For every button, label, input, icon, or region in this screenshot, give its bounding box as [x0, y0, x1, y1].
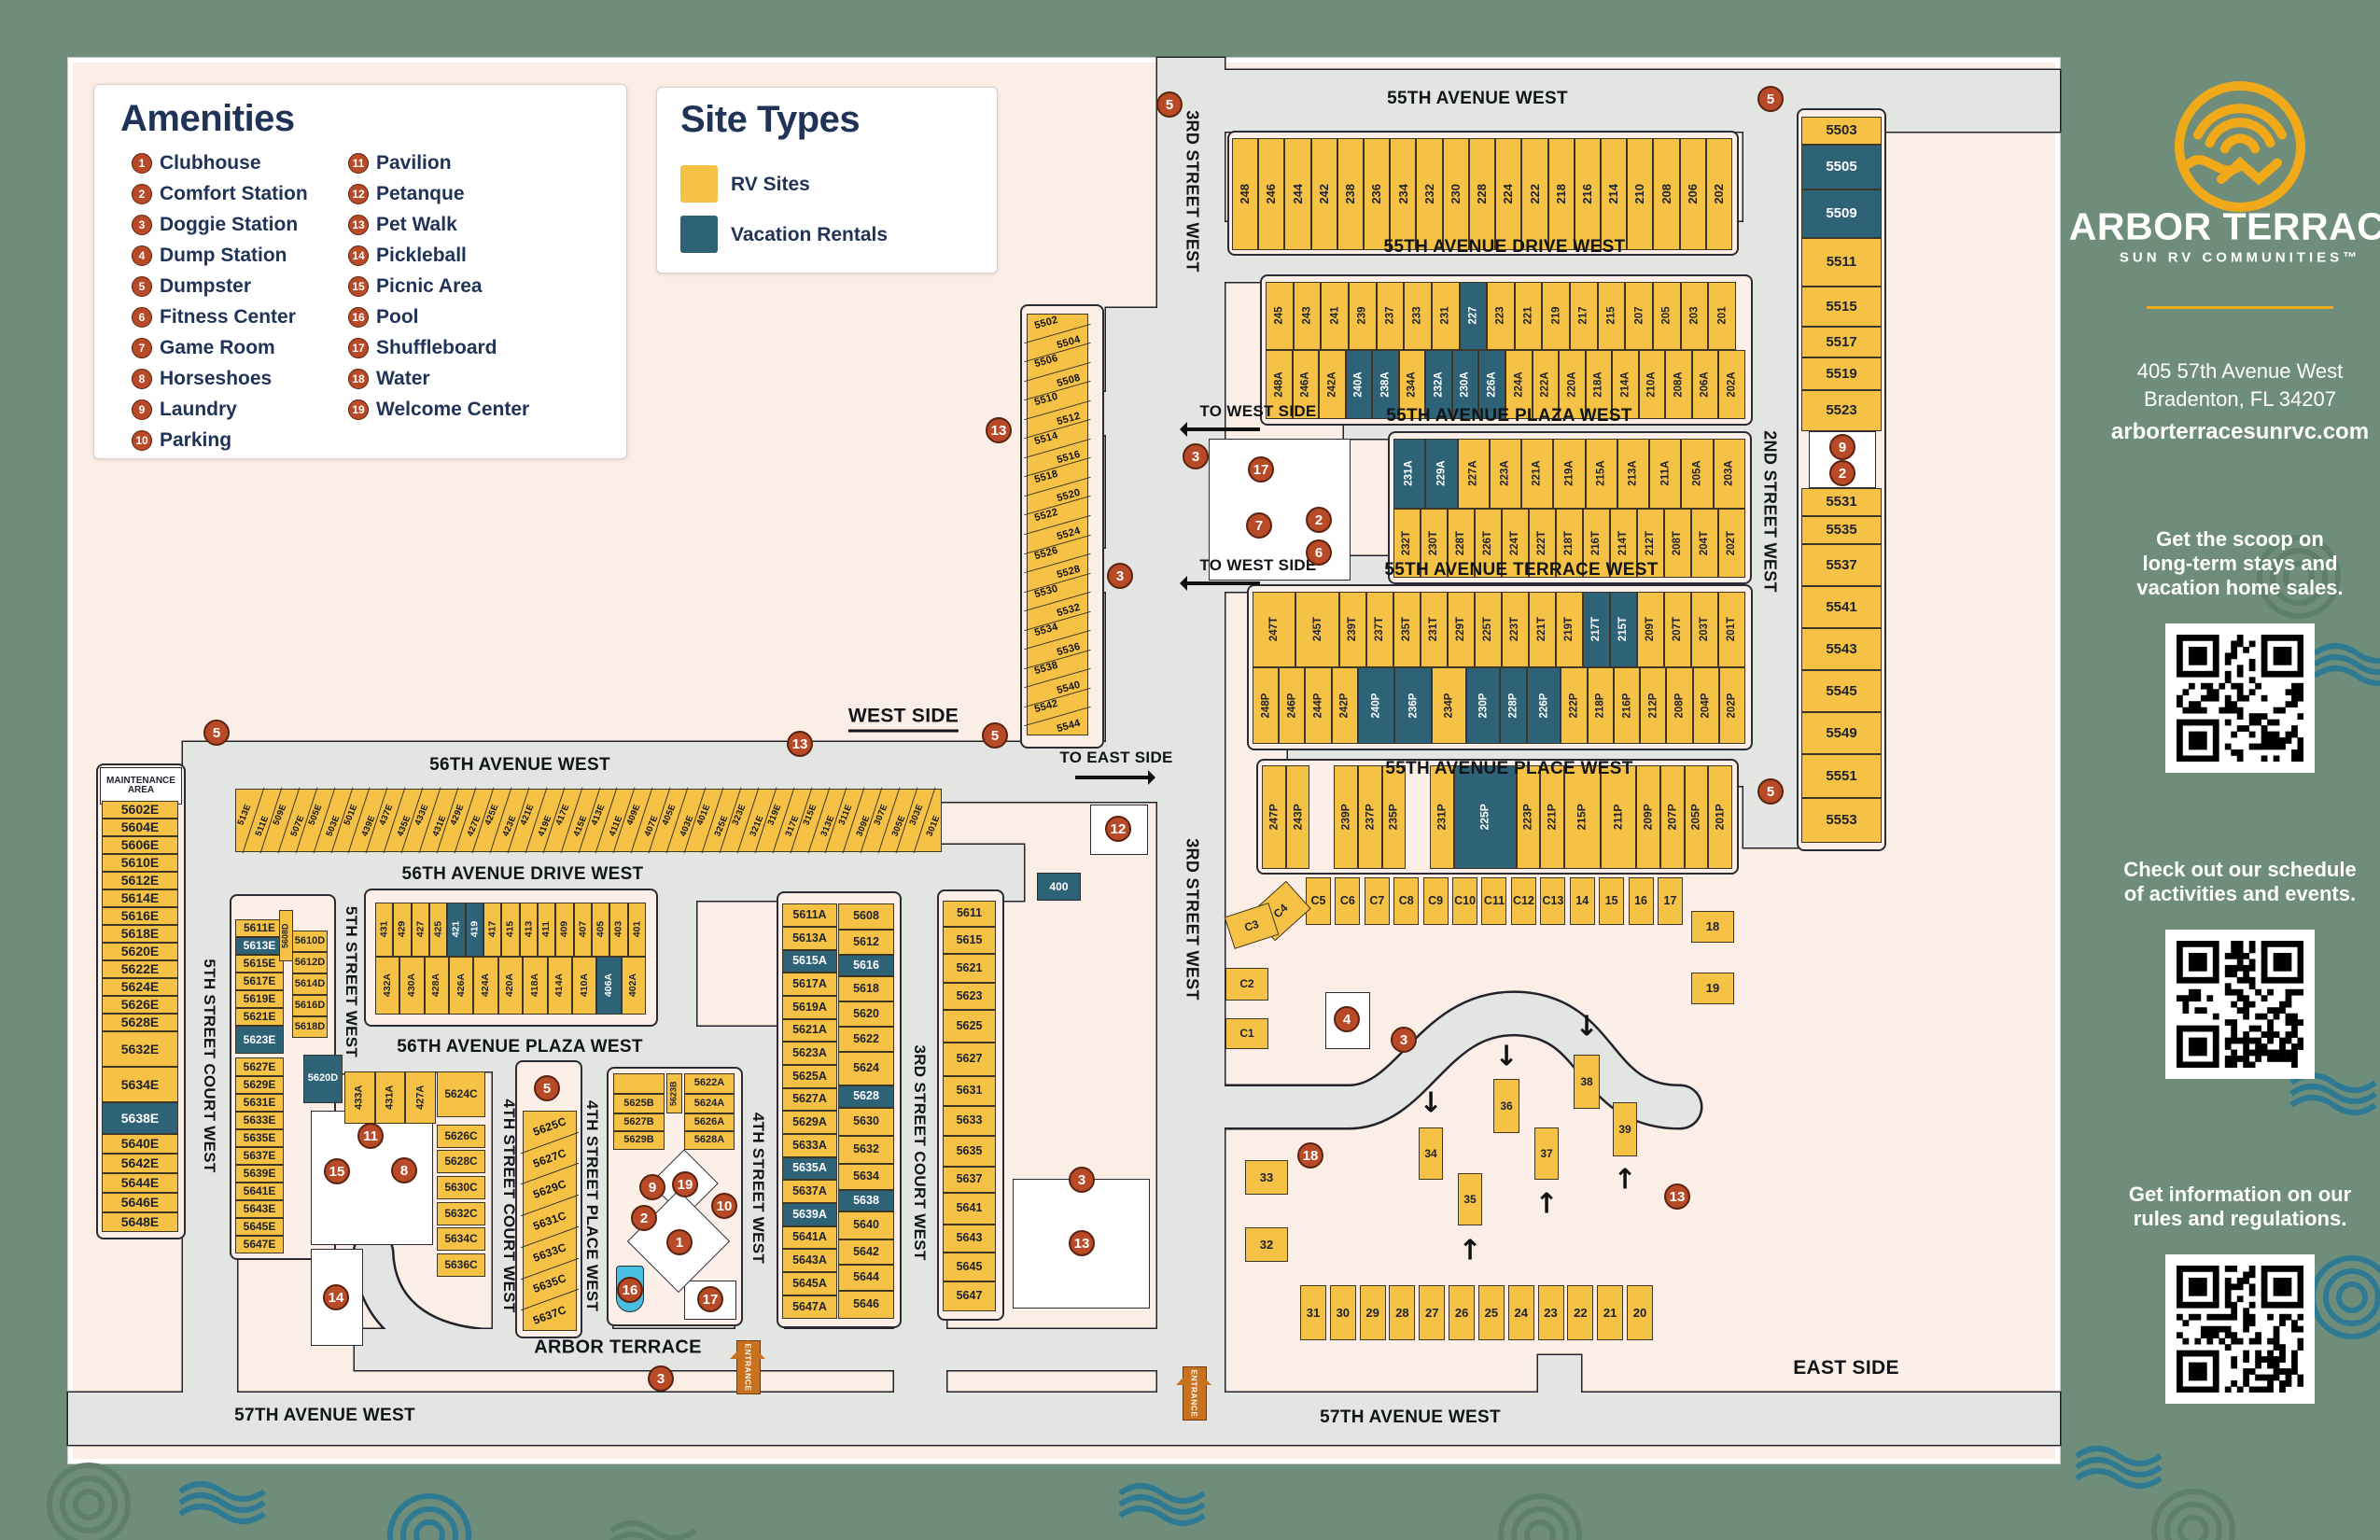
amenity-marker-5: 5 [534, 1075, 560, 1101]
amenity-legend-item-7: 7Game Room [132, 337, 308, 359]
amenity-label: Picnic Area [376, 275, 483, 298]
site-5621: 5621 [943, 954, 996, 983]
site-235P: 235P [1382, 765, 1407, 869]
site-241: 241 [1321, 282, 1349, 350]
amenity-legend-item-8: 8Horseshoes [132, 368, 308, 390]
site-221: 221 [1515, 282, 1543, 350]
amenity-label: Shuffleboard [376, 337, 497, 359]
site-219: 219 [1542, 282, 1570, 350]
amenity-marker-17: 17 [1248, 456, 1274, 483]
site-5645: 5645 [943, 1253, 996, 1281]
site-types-title: Site Types [680, 99, 860, 141]
amenity-label: Fitness Center [160, 306, 296, 329]
website-url: arborterracesunrvc.com [2111, 419, 2369, 445]
site-5509: 5509 [1801, 189, 1882, 238]
amenity-legend-item-2: 2Comfort Station [132, 183, 308, 205]
site-236: 236 [1364, 138, 1390, 250]
site-5612E: 5612E [102, 872, 178, 889]
site-201T: 201T [1718, 592, 1745, 667]
amenity-legend-item-4: 4Dump Station [132, 245, 308, 267]
site-5624: 5624 [838, 1052, 894, 1085]
qr-code [2165, 623, 2315, 773]
site-207T: 207T [1664, 592, 1691, 667]
street-label: 55TH AVENUE PLACE WEST [1385, 759, 1632, 779]
amenity-marker-13: 13 [1069, 1230, 1095, 1256]
amenity-number-badge: 10 [132, 430, 152, 451]
site-223: 223 [1487, 282, 1515, 350]
site-240A: 240A [1346, 350, 1373, 419]
amenity-number-badge: 9 [132, 399, 152, 420]
site-C12: C12 [1511, 877, 1536, 925]
site-229T: 229T [1448, 592, 1475, 667]
amenity-marker-6: 6 [1306, 539, 1332, 566]
amenity-number-badge: 11 [348, 153, 369, 174]
site-23: 23 [1538, 1285, 1564, 1340]
site-5543: 5543 [1801, 628, 1882, 670]
amenity-marker-7: 7 [1246, 512, 1272, 539]
site-5616E: 5616E [102, 907, 178, 925]
site-5531: 5531 [1801, 488, 1882, 516]
sidebar-section-2-line-2: of activities and events. [2124, 882, 2356, 906]
site-29: 29 [1360, 1285, 1386, 1340]
direction-arrow-icon: ↓ [1419, 1087, 1442, 1120]
site-C8: C8 [1393, 877, 1419, 925]
amenity-number-badge: 3 [132, 215, 152, 235]
site-208: 208 [1653, 138, 1679, 250]
amenity-marker-9: 9 [1829, 434, 1855, 460]
amenity-legend-item-5: 5Dumpster [132, 275, 308, 298]
site-5614D: 5614D [292, 973, 328, 995]
site-5621A: 5621A [782, 1019, 837, 1042]
site-5635: 5635 [943, 1136, 996, 1167]
amenity-number-badge: 19 [348, 399, 369, 420]
site-202P: 202P [1719, 667, 1745, 744]
site-5632E: 5632E [102, 1031, 178, 1067]
site-5623B: 5623B [666, 1073, 682, 1113]
amenity-legend-item-14: 14Pickleball [348, 245, 529, 267]
amenity-number-badge: 17 [348, 338, 369, 358]
brand-name: ARBOR TERRACE [2069, 205, 2380, 249]
site-244P: 244P [1305, 667, 1331, 744]
site-221T: 221T [1529, 592, 1556, 667]
site-232: 232 [1416, 138, 1442, 250]
site-219A: 219A [1553, 439, 1585, 509]
site-420A: 420A [498, 957, 523, 1015]
site-230P: 230P [1466, 667, 1501, 744]
amenity-legend-item-18: 18Water [348, 368, 529, 390]
site-5630: 5630 [838, 1108, 894, 1136]
site-5631: 5631 [943, 1076, 996, 1106]
site-5545: 5545 [1801, 670, 1882, 712]
site-5613A: 5613A [782, 927, 837, 950]
site-239T: 239T [1339, 592, 1366, 667]
site-203: 203 [1681, 282, 1709, 350]
site-5627: 5627 [943, 1043, 996, 1076]
site-5602E: 5602E [102, 801, 178, 819]
site-5634: 5634 [838, 1164, 894, 1190]
amenity-marker-18: 18 [1297, 1142, 1323, 1169]
amenity-marker-15: 15 [324, 1158, 350, 1184]
site-C6: C6 [1335, 877, 1360, 925]
site-5626A: 5626A [684, 1113, 735, 1131]
site-5611E: 5611E [235, 919, 284, 937]
amenity-number-badge: 4 [132, 245, 152, 266]
site-5643E: 5643E [235, 1200, 284, 1218]
site-245: 245 [1266, 282, 1294, 350]
entrance-arrow: ENTRANCE [1183, 1366, 1207, 1421]
site-5627E: 5627E [235, 1057, 284, 1076]
amenity-legend-item-1: 1Clubhouse [132, 152, 308, 175]
site-36: 36 [1493, 1079, 1519, 1133]
site-5635A: 5635A [782, 1157, 837, 1180]
amenity-marker-3: 3 [1391, 1027, 1417, 1053]
amenity-marker-1: 1 [666, 1229, 693, 1255]
site-5541: 5541 [1801, 586, 1882, 628]
site-5639E: 5639E [235, 1165, 284, 1183]
site-C5: C5 [1306, 877, 1331, 925]
street-label: 56TH AVENUE WEST [429, 755, 610, 776]
to-side-arrow-icon [1075, 776, 1150, 779]
park-map-poster: Amenities 1Clubhouse2Comfort Station3Dog… [0, 0, 2380, 1540]
amenities-legend: Amenities 1Clubhouse2Comfort Station3Dog… [93, 84, 627, 459]
site-5638E: 5638E [102, 1102, 178, 1134]
site-5620D: 5620D [303, 1055, 343, 1103]
site-234: 234 [1390, 138, 1416, 250]
site-5612: 5612 [838, 930, 894, 955]
amenity-marker-13: 13 [1664, 1183, 1690, 1210]
direction-arrow-icon: ↑ [1534, 1188, 1558, 1221]
site-5511: 5511 [1801, 238, 1882, 287]
amenity-marker-13: 13 [986, 417, 1012, 443]
site-5614E: 5614E [102, 889, 178, 907]
site-18: 18 [1691, 911, 1734, 943]
site-5624A: 5624A [684, 1094, 735, 1113]
site-5620E: 5620E [102, 943, 178, 960]
amenity-number-badge: 2 [132, 184, 152, 204]
amenity-number-badge: 18 [348, 369, 369, 389]
site-5610D: 5610D [292, 931, 328, 952]
site-426A: 426A [449, 957, 473, 1015]
site-5537: 5537 [1801, 544, 1882, 586]
site-424A: 424A [473, 957, 497, 1015]
site-5627A: 5627A [782, 1088, 837, 1111]
site-5632C: 5632C [437, 1202, 485, 1225]
site-217T: 217T [1583, 592, 1610, 667]
site-209P: 209P [1636, 765, 1660, 869]
site-218P: 218P [1588, 667, 1614, 744]
street-label: 56TH AVENUE PLAZA WEST [397, 1037, 642, 1057]
site-5535: 5535 [1801, 516, 1882, 544]
amenity-marker-4: 4 [1334, 1006, 1360, 1032]
amenity-label: Game Room [160, 337, 275, 359]
street-label: TO EAST SIDE [1059, 749, 1172, 767]
site-215: 215 [1598, 282, 1626, 350]
site-5624C: 5624C [437, 1071, 485, 1117]
site-5623A: 5623A [782, 1042, 837, 1065]
to-side-arrow-icon [1185, 581, 1260, 585]
street-label: 5TH STREET COURT WEST [200, 959, 218, 1172]
amenity-legend-item-11: 11Pavilion [348, 152, 529, 175]
rv-sites-label: RV Sites [731, 174, 810, 196]
site-5620: 5620 [838, 1001, 894, 1027]
site-5523: 5523 [1801, 390, 1882, 431]
site-427: 427 [412, 903, 429, 957]
amenity-label: Welcome Center [376, 399, 529, 421]
box-400: 400 [1037, 873, 1081, 901]
site-221A: 221A [1521, 439, 1553, 509]
site-411: 411 [538, 903, 555, 957]
site-421: 421 [447, 903, 465, 957]
site-410A: 410A [572, 957, 596, 1015]
site-231P: 231P [1430, 765, 1454, 869]
amenity-label: Petanque [376, 183, 465, 205]
site-5640: 5640 [838, 1211, 894, 1239]
amenity-label: Pickleball [376, 245, 467, 267]
amenity-marker-2: 2 [1306, 507, 1332, 533]
site-5615E: 5615E [235, 955, 284, 973]
site-206A: 206A [1692, 350, 1719, 419]
site-5626C: 5626C [437, 1125, 485, 1148]
site-5619A: 5619A [782, 996, 837, 1019]
amenity-marker-5: 5 [1757, 86, 1784, 112]
amenity-marker-5: 5 [982, 722, 1008, 749]
site-5648E: 5648E [102, 1212, 178, 1232]
site-234P: 234P [1432, 667, 1466, 744]
site-405: 405 [592, 903, 609, 957]
site-246P: 246P [1279, 667, 1305, 744]
site-230: 230 [1443, 138, 1469, 250]
site-5645E: 5645E [235, 1218, 284, 1236]
box-maintenance-area: MAINTENANCE AREA [100, 767, 182, 805]
amenity-legend-item-15: 15Picnic Area [348, 275, 529, 298]
direction-arrow-icon: ↓ [1575, 1011, 1598, 1043]
site-215P: 215P [1564, 765, 1601, 869]
site-5618D: 5618D [292, 1016, 328, 1038]
site-5619E: 5619E [235, 990, 284, 1008]
site-209T: 209T [1637, 592, 1664, 667]
site-5617E: 5617E [235, 973, 284, 990]
amenity-label: Dump Station [160, 245, 287, 267]
site-5519: 5519 [1801, 357, 1882, 390]
site-5633E: 5633E [235, 1112, 284, 1129]
site-5637: 5637 [943, 1167, 996, 1193]
site-247T: 247T [1253, 592, 1295, 667]
address-line-2: Bradenton, FL 34207 [2144, 387, 2336, 412]
site-C9: C9 [1423, 877, 1449, 925]
site-5616D: 5616D [292, 995, 328, 1016]
site-231T: 231T [1421, 592, 1448, 667]
site-5640E: 5640E [102, 1134, 178, 1154]
site-248P: 248P [1253, 667, 1279, 744]
site-5631E: 5631E [235, 1094, 284, 1112]
site-15: 15 [1599, 877, 1624, 925]
site-224: 224 [1495, 138, 1521, 250]
site-5647: 5647 [943, 1281, 996, 1311]
site-31: 31 [1300, 1285, 1326, 1340]
site-C1: C1 [1225, 1018, 1268, 1049]
site-228P: 228P [1500, 667, 1526, 744]
site-5623E: 5623E [235, 1026, 284, 1054]
site-5644E: 5644E [102, 1173, 178, 1193]
site-14: 14 [1570, 877, 1595, 925]
site-208P: 208P [1666, 667, 1692, 744]
amenity-legend-item-19: 19Welcome Center [348, 399, 529, 421]
site-203T: 203T [1691, 592, 1718, 667]
site-5503: 5503 [1801, 117, 1882, 145]
site-5638: 5638 [838, 1190, 894, 1211]
site-432A: 432A [375, 957, 399, 1015]
street-label: 3RD STREET COURT WEST [910, 1044, 929, 1260]
site-5633: 5633 [943, 1106, 996, 1136]
site-5641: 5641 [943, 1193, 996, 1225]
amenities-legend-title: Amenities [120, 98, 295, 140]
site-5642: 5642 [838, 1239, 894, 1265]
site-409: 409 [555, 903, 573, 957]
site-5615A: 5615A [782, 950, 837, 973]
site-27: 27 [1419, 1285, 1445, 1340]
amenity-marker-5: 5 [1156, 91, 1183, 118]
amenity-number-badge: 12 [348, 184, 369, 204]
sidebar-section-3-line-2: rules and regulations. [2134, 1207, 2347, 1231]
site-26: 26 [1449, 1285, 1475, 1340]
site-223P: 223P [1517, 765, 1541, 869]
site-202T: 202T [1718, 509, 1745, 578]
site-5643: 5643 [943, 1225, 996, 1253]
street-label: 4TH STREET PLACE WEST [582, 1100, 601, 1311]
amenity-label: Pet Walk [376, 214, 457, 236]
street-label: 3RD STREET WEST [1183, 838, 1202, 1001]
amenity-marker-3: 3 [648, 1365, 674, 1392]
site-5632: 5632 [838, 1136, 894, 1164]
qr-code [2165, 930, 2315, 1079]
site-5622: 5622 [838, 1027, 894, 1052]
site-231: 231 [1432, 282, 1460, 350]
site-203A: 203A [1714, 439, 1745, 509]
street-label: 3RD STREET WEST [1183, 110, 1202, 273]
site-210A: 210A [1639, 350, 1666, 419]
amenity-number-badge: 16 [348, 307, 369, 328]
amenity-number-badge: 8 [132, 369, 152, 389]
site-247P: 247P [1262, 765, 1286, 869]
site-239P: 239P [1334, 765, 1358, 869]
site-401: 401 [628, 903, 646, 957]
amenity-marker-3: 3 [1183, 443, 1209, 469]
site-5646: 5646 [838, 1291, 894, 1319]
site-19: 19 [1691, 973, 1734, 1004]
site-5611: 5611 [943, 901, 996, 927]
site-5646E: 5646E [102, 1193, 178, 1212]
site-222: 222 [1521, 138, 1547, 250]
site-5606E: 5606E [102, 836, 178, 854]
site-207P: 207P [1660, 765, 1685, 869]
site-5621E: 5621E [235, 1008, 284, 1026]
site-5627B: 5627B [613, 1113, 665, 1131]
site-C11: C11 [1481, 877, 1506, 925]
site-22: 22 [1567, 1285, 1593, 1340]
site-205: 205 [1653, 282, 1681, 350]
site-5628A: 5628A [684, 1131, 735, 1150]
amenity-legend-item-6: 6Fitness Center [132, 306, 308, 329]
street-label: 55TH AVENUE PLAZA WEST [1386, 406, 1631, 427]
site-5612D: 5612D [292, 952, 328, 973]
brand-subtitle: SUN RV COMMUNITIES™ [2120, 250, 2360, 266]
site-5618E: 5618E [102, 925, 178, 943]
site-236P: 236P [1394, 667, 1432, 744]
site-types-legend: Site Types RV Sites Vacation Rentals [656, 87, 998, 273]
site-242P: 242P [1332, 667, 1358, 744]
amenity-label: Doggie Station [160, 214, 298, 236]
site-5630C: 5630C [437, 1176, 485, 1199]
site-204P: 204P [1693, 667, 1719, 744]
site-5636C: 5636C [437, 1253, 485, 1277]
site-428A: 428A [425, 957, 449, 1015]
amenities-column-1: 1Clubhouse2Comfort Station3Doggie Statio… [132, 152, 308, 460]
site-16: 16 [1629, 877, 1654, 925]
sidebar-section-1-line-1: Get the scoop on [2156, 527, 2324, 552]
vacation-rentals-label: Vacation Rentals [731, 224, 888, 246]
site-5628: 5628 [838, 1085, 894, 1108]
site-5610E: 5610E [102, 854, 178, 872]
site-205A: 205A [1681, 439, 1713, 509]
direction-arrow-icon: ↑ [1458, 1235, 1481, 1267]
amenity-number-badge: 13 [348, 215, 369, 235]
amenity-legend-item-10: 10Parking [132, 429, 308, 452]
site-30: 30 [1330, 1285, 1356, 1340]
site-218: 218 [1548, 138, 1575, 250]
site-430A: 430A [399, 957, 424, 1015]
site-C7: C7 [1365, 877, 1390, 925]
site-208A: 208A [1665, 350, 1692, 419]
site-433A: 433A [344, 1071, 375, 1124]
site-237T: 237T [1366, 592, 1393, 667]
sidebar-section-3-line-1: Get information on our [2129, 1183, 2351, 1207]
street-label: TO WEST SIDE [1199, 402, 1316, 421]
site-237P: 237P [1358, 765, 1382, 869]
sidebar-divider [2147, 306, 2333, 309]
amenity-label: Water [376, 368, 430, 390]
street-label: EAST SIDE [1793, 1357, 1899, 1379]
amenity-marker-2: 2 [1829, 460, 1855, 486]
street-label: 2ND STREET WEST [1760, 430, 1780, 593]
site-237: 237 [1377, 282, 1405, 350]
amenity-legend-item-13: 13Pet Walk [348, 214, 529, 236]
site-5613E: 5613E [235, 937, 284, 955]
amenity-label: Pool [376, 306, 419, 329]
site-239: 239 [1349, 282, 1377, 350]
site-unlabeled [613, 1073, 665, 1094]
site-5551: 5551 [1801, 754, 1882, 798]
site-211P: 211P [1601, 765, 1637, 869]
site-429: 429 [393, 903, 411, 957]
amenities-column-2: 11Pavilion12Petanque13Pet Walk14Pickleba… [348, 152, 529, 429]
site-242A: 242A [1319, 350, 1346, 419]
amenity-label: Comfort Station [160, 183, 308, 205]
site-5645A: 5645A [782, 1272, 837, 1295]
site-225T: 225T [1475, 592, 1502, 667]
direction-arrow-icon: ↓ [1494, 1041, 1518, 1073]
amenity-label: Laundry [160, 399, 237, 421]
site-5515: 5515 [1801, 287, 1882, 327]
site-5642E: 5642E [102, 1154, 178, 1173]
site-34: 34 [1419, 1127, 1443, 1180]
site-5617A: 5617A [782, 973, 837, 996]
site-217: 217 [1570, 282, 1598, 350]
site-228: 228 [1469, 138, 1495, 250]
site-235T: 235T [1393, 592, 1421, 667]
site-417: 417 [483, 903, 501, 957]
site-213A: 213A [1617, 439, 1649, 509]
site-24: 24 [1508, 1285, 1534, 1340]
